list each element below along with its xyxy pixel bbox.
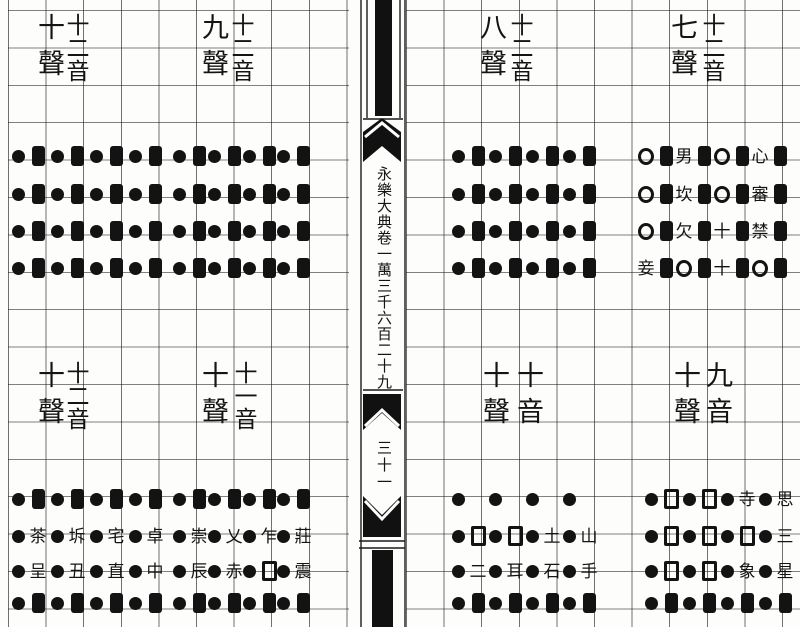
section-header-sheng-10c: 十聲 (199, 361, 226, 433)
left-page-grid (8, 0, 349, 627)
section-header-yin-9: 九音 (703, 361, 730, 433)
section-header-sheng-10: 十聲 (35, 13, 62, 85)
section-header-sheng-10a: 十聲 (671, 361, 698, 433)
right-page-grid (406, 0, 800, 627)
section-header-yin-12d: 十二音 (64, 13, 87, 82)
lower-fishtail-mark (363, 496, 401, 537)
section-header-yin-12c: 十二音 (229, 13, 252, 82)
section-header-yin-10: 十音 (514, 361, 541, 433)
section-header-yin-11: 十一音 (232, 361, 255, 430)
spine-leaf-number: 三十一 (371, 438, 395, 492)
section-header-yin-12e: 十二音 (64, 361, 87, 430)
section-header-sheng-9: 九聲 (199, 13, 226, 85)
section-header-yin-12b: 十二音 (508, 13, 531, 82)
section-header-yin-12a: 十二音 (700, 13, 723, 82)
scanned-book-page: 七聲 十二音 八聲 十二音 九聲 十二音 十聲 十二音 十聲 九音 十聲 十音 … (0, 0, 800, 627)
section-header-sheng-10d: 十聲 (35, 361, 62, 433)
section-header-sheng-8: 八聲 (477, 13, 504, 85)
spine-top-black-bar (375, 0, 392, 116)
spine-volume-title: 永樂大典卷一萬三千六百二十九 (369, 161, 397, 394)
spine-bottom-black-bar (372, 550, 393, 627)
section-header-sheng-7: 七聲 (668, 13, 695, 85)
section-header-sheng-10b: 十聲 (480, 361, 507, 433)
